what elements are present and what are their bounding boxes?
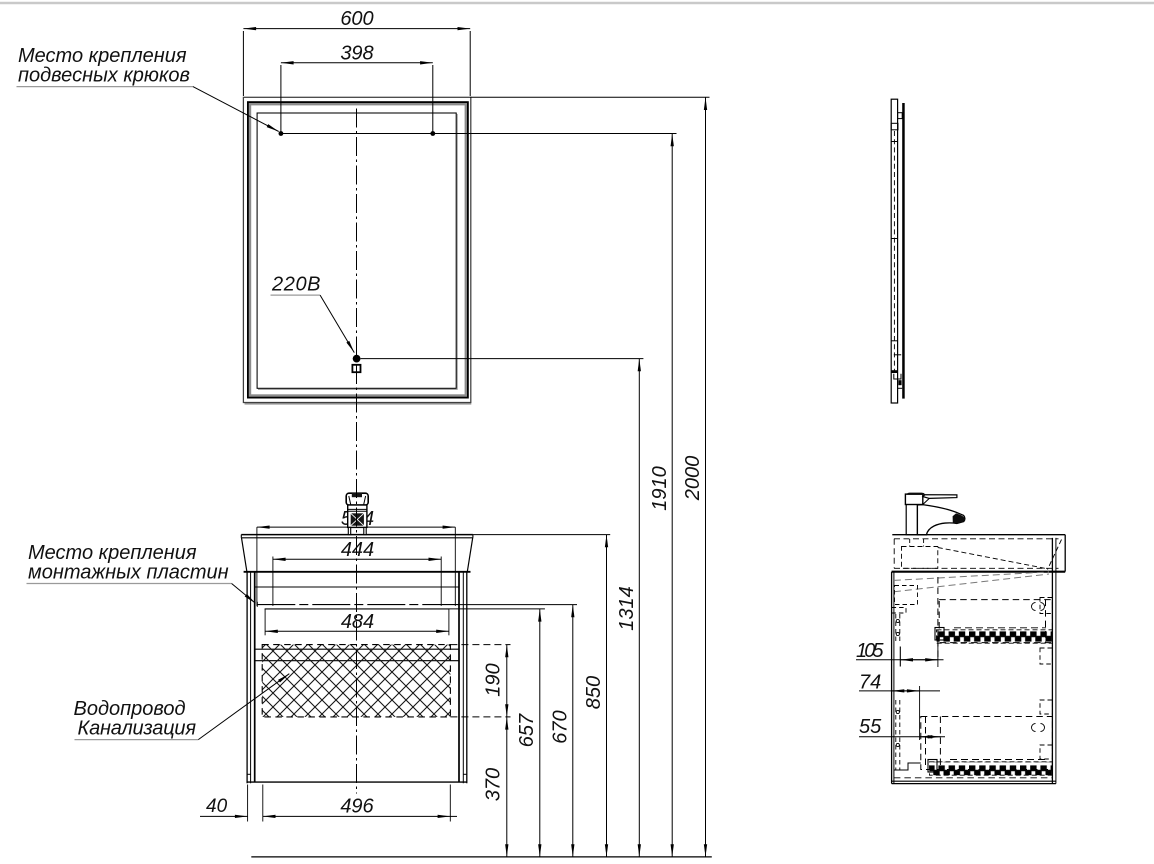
svg-text:670: 670 — [550, 710, 572, 743]
svg-text:подвесных крюков: подвесных крюков — [18, 65, 190, 87]
svg-text:1314: 1314 — [616, 586, 638, 631]
svg-text:монтажных пластин: монтажных пластин — [28, 562, 229, 584]
svg-text:496: 496 — [340, 795, 374, 817]
svg-text:398: 398 — [340, 42, 373, 64]
svg-text:74: 74 — [859, 671, 881, 693]
svg-text:55: 55 — [859, 716, 882, 738]
svg-text:40: 40 — [206, 796, 228, 817]
svg-text:484: 484 — [341, 611, 374, 633]
svg-text:850: 850 — [583, 676, 605, 709]
svg-text:657: 657 — [516, 713, 538, 747]
svg-text:370: 370 — [483, 768, 505, 801]
svg-text:444: 444 — [341, 539, 374, 561]
svg-text:190: 190 — [483, 663, 505, 696]
svg-text:2000: 2000 — [682, 456, 704, 502]
svg-text:Канализация: Канализация — [78, 718, 197, 740]
svg-text:600: 600 — [340, 8, 373, 30]
svg-text:105: 105 — [856, 640, 884, 662]
svg-text:220В: 220В — [271, 273, 321, 295]
svg-text:1910: 1910 — [649, 466, 671, 511]
